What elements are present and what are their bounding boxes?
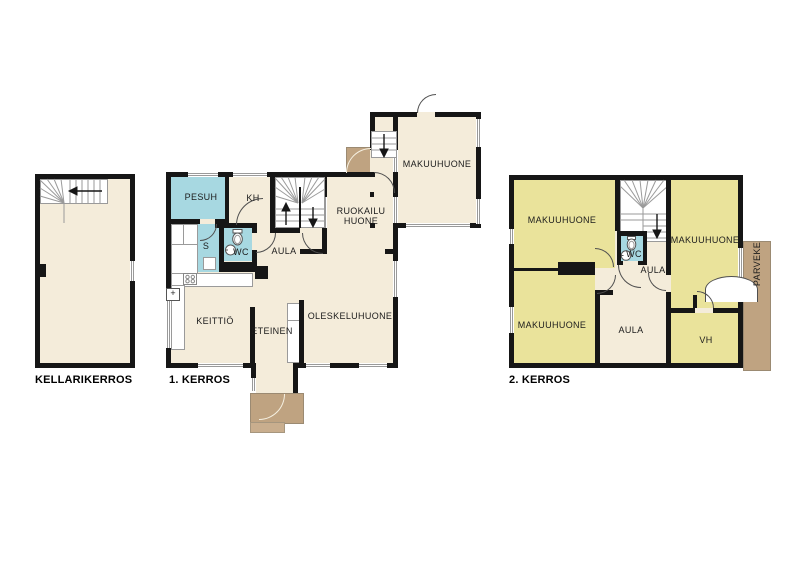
- room-label-makuuhuone-bottomleft: MAKUUHUONE: [518, 320, 587, 330]
- porch-step: [250, 422, 285, 433]
- room-label-makuuhuone-topright: MAKUUHUONE: [671, 235, 740, 245]
- appliance-marker: +: [166, 288, 180, 301]
- wall: [40, 264, 46, 277]
- balcony-door-arc: [705, 276, 758, 302]
- wall: [251, 368, 256, 378]
- room-label-oleskeluhuone: OLESKELUHUONE: [308, 311, 393, 321]
- floor1-staircase: [275, 177, 325, 228]
- window: [393, 261, 398, 297]
- wall: [643, 231, 647, 265]
- wall: [385, 249, 398, 254]
- room-label-sauna: S: [203, 241, 209, 251]
- wall: [225, 172, 229, 223]
- room-label-vh: VH: [699, 335, 712, 345]
- room-label-kh: KH: [246, 193, 259, 203]
- wall: [671, 308, 695, 313]
- door-arc: [417, 94, 436, 113]
- fireplace-mass: [255, 266, 268, 279]
- sauna-stove: [203, 257, 216, 270]
- room-label-eteinen: ETEINEN: [251, 326, 292, 336]
- wall: [293, 368, 298, 393]
- room-label-makuuhuone: MAKUUHUONE: [403, 159, 472, 169]
- window: [509, 229, 514, 244]
- basement-floor-label: KELLARIKERROS: [35, 374, 132, 386]
- room-label-aula: AULA: [619, 325, 644, 335]
- stove-icon: [183, 273, 197, 285]
- entry-vestibule-floor: [256, 368, 293, 393]
- window: [476, 199, 481, 224]
- window: [306, 363, 330, 368]
- room-label-aula: AULA: [272, 246, 297, 256]
- fireplace-mass: [219, 262, 257, 272]
- wing-steps: [371, 131, 397, 158]
- wall: [666, 292, 671, 363]
- wall: [250, 307, 255, 368]
- room-label-makuuhuone-topleft: MAKUUHUONE: [528, 215, 597, 225]
- wall: [558, 262, 595, 275]
- window: [251, 378, 256, 391]
- wall: [393, 172, 398, 197]
- wall: [219, 223, 224, 262]
- window: [509, 307, 514, 333]
- wall: [595, 293, 600, 363]
- window: [393, 197, 398, 223]
- room-label-parveke: PARVEKE: [752, 242, 762, 286]
- room-label-wc: WC: [233, 247, 249, 257]
- window: [130, 261, 135, 281]
- room-label-ruokailuhuone: RUOKAILU HUONE: [337, 206, 386, 226]
- floor1-wing-outline: [370, 112, 481, 228]
- room-label-wc2: WC: [626, 249, 642, 259]
- floor2-floor-label: 2. KERROS: [509, 374, 570, 386]
- room-label-keittio: KEITTIÖ: [196, 316, 233, 326]
- basement-staircase: [40, 179, 110, 224]
- room-makuuhuone-bottomleft: [514, 271, 595, 363]
- window: [233, 172, 267, 177]
- wall: [617, 231, 621, 265]
- window: [188, 172, 218, 177]
- room-label-pesuh: PESUH: [185, 192, 218, 202]
- wall: [171, 219, 200, 224]
- window: [198, 363, 243, 368]
- room-label-aula-upper: AULA: [641, 265, 666, 275]
- washroom-bench: [171, 224, 198, 274]
- window: [406, 223, 470, 228]
- wall: [666, 180, 671, 275]
- window: [476, 119, 481, 147]
- wall: [299, 300, 304, 368]
- wall: [713, 308, 738, 313]
- floor-plan-canvas: KELLARIKERROS: [0, 0, 800, 566]
- wall: [615, 180, 620, 231]
- window: [359, 363, 387, 368]
- wall: [514, 268, 558, 271]
- floor1-floor-label: 1. KERROS: [169, 374, 230, 386]
